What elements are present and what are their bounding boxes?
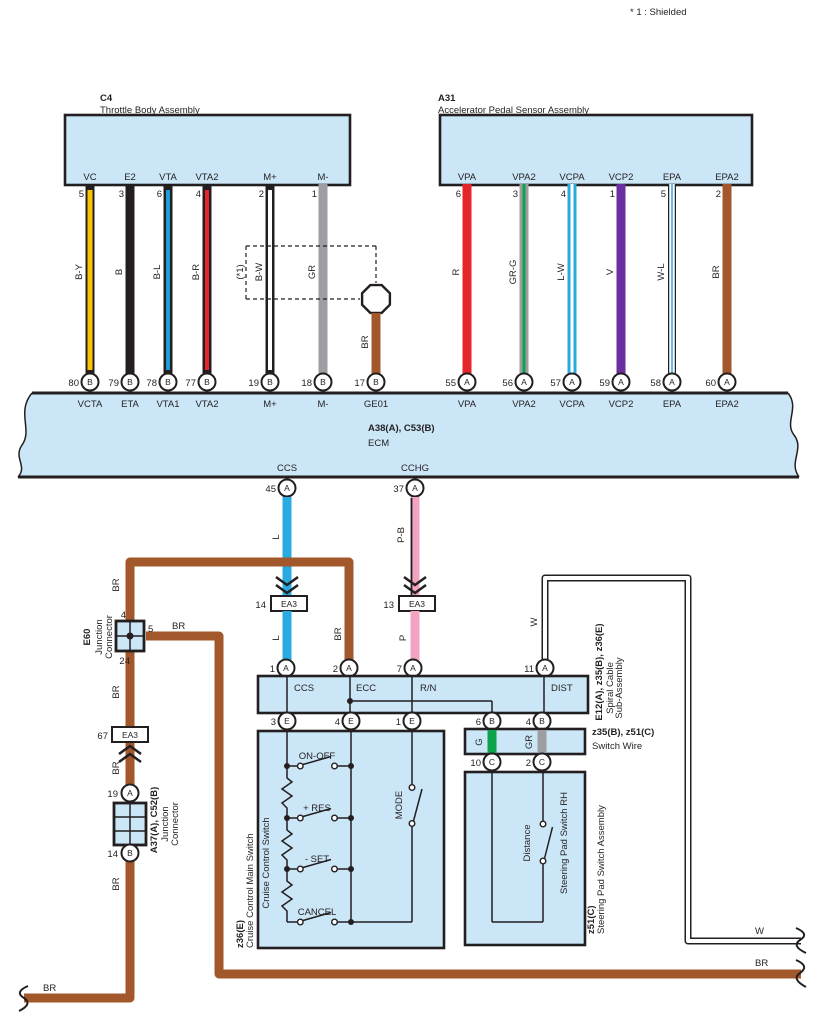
- wire-label: W: [529, 617, 540, 626]
- pin-letter: B: [127, 848, 133, 858]
- wire-label: BR: [111, 877, 122, 890]
- switch-label: Distance: [522, 825, 533, 862]
- pin-letter: B: [204, 377, 210, 387]
- pin-letter: A: [569, 377, 575, 387]
- a31-pin-number: 4: [561, 189, 566, 200]
- a31-pin-label: VPA2: [512, 172, 536, 183]
- ecm-pin-name: M-: [317, 399, 328, 410]
- pin-number: 77: [185, 378, 196, 389]
- pin-letter: B: [320, 377, 326, 387]
- ecm-pin-name: ETA: [121, 399, 139, 410]
- pin-number: 3: [271, 717, 276, 728]
- cruise-control-main-switch: ON-OFF + RES - SET CANCEL MODE Cruise Co…: [235, 730, 444, 948]
- pin-number: 37: [393, 484, 404, 495]
- pin-number: 11: [524, 664, 534, 675]
- switch-label: - SET: [305, 854, 329, 865]
- cruise-inner-label: Cruise Control Switch: [261, 817, 272, 908]
- c4-pin-label: VTA2: [195, 172, 218, 183]
- pin-letter: B: [489, 716, 495, 726]
- spiral-pin-label: R/N: [420, 683, 437, 694]
- pin-number: 45: [265, 484, 276, 495]
- pin-number: 1: [396, 717, 401, 728]
- pin-letter: C: [489, 757, 495, 767]
- pin-letter: B: [267, 377, 273, 387]
- ecm-pin-name: VCPA: [559, 399, 585, 410]
- wire-label: BR: [111, 761, 122, 774]
- junction-dot: [347, 698, 353, 704]
- c4-pin-label: VTA: [159, 172, 177, 183]
- pin-number: 19: [107, 789, 118, 800]
- pin-letter: A: [284, 483, 290, 493]
- c4-pin-label: E2: [124, 172, 136, 183]
- wire-label: B-Y: [74, 263, 85, 280]
- junction-dot: [127, 633, 134, 640]
- wire-label: GR-G: [508, 260, 519, 285]
- steering-name: Steering Pad Switch Assembly: [596, 805, 607, 934]
- pin-number: 60: [705, 378, 716, 389]
- shielded-note: * 1 : Shielded: [630, 7, 687, 18]
- pin-number: 2: [526, 758, 531, 769]
- c4-pin-number: 3: [119, 189, 124, 200]
- ecm-title: ECM: [368, 438, 389, 449]
- a31-pin-label: VCP2: [609, 172, 634, 183]
- switch-label: MODE: [394, 791, 405, 820]
- steering-pad-switch-assembly: Distance Steering Pad Switch RH z51(C) S…: [465, 771, 607, 945]
- pin-letter: A: [542, 663, 548, 673]
- wire-label: L-W: [556, 263, 567, 280]
- c4-pin-number: 4: [196, 189, 201, 200]
- ecm-pin-name: M+: [263, 399, 277, 410]
- pin-letter: C: [539, 757, 545, 767]
- steering-inner-label: Steering Pad Switch RH: [559, 792, 570, 894]
- e60-id: E60: [82, 629, 93, 646]
- c4-pin-number: 2: [259, 189, 264, 200]
- connector-number: 14: [255, 600, 266, 611]
- pin-letter: A: [346, 663, 352, 673]
- c4-pin-label: M-: [317, 172, 328, 183]
- spiral-id: E12(A), z35(B), z36(E): [594, 623, 605, 720]
- c4-pin-label: VC: [83, 172, 96, 183]
- ecm-pin-name: GE01: [364, 399, 388, 410]
- a31-pin-number: 2: [716, 189, 721, 200]
- wire-label: GR: [524, 735, 535, 749]
- pin-letter: B: [165, 377, 171, 387]
- ecm-pin-name: EPA: [663, 399, 682, 410]
- wire-label: BR: [711, 265, 722, 278]
- ecm-pin-name: CCS: [277, 463, 297, 474]
- ecm-pin-name: VCP2: [609, 399, 634, 410]
- spiral-pin-label: DIST: [551, 683, 573, 694]
- pin-number: 18: [301, 378, 312, 389]
- wire-label: BR: [755, 958, 768, 969]
- wire-label: W: [755, 926, 764, 937]
- a31-connector-body: [440, 115, 752, 185]
- pin-number: 6: [476, 717, 481, 728]
- e60-pin-number: 5: [148, 624, 153, 635]
- e60-pin-number: 24: [119, 656, 130, 667]
- wire-label: B-W: [254, 263, 265, 282]
- ecm-pin-name: EPA2: [715, 399, 739, 410]
- spiral-cable-block: A 1 A 2 A 7 A 11 CCS ECC R/N DIST E 3 E …: [258, 623, 625, 729]
- wire-label: B: [114, 269, 125, 275]
- pin-letter: A: [464, 377, 470, 387]
- ecm-pin-row: B 80 B 79 B 78 B 77 B 19 B 18 B 17 A 55 …: [68, 374, 735, 391]
- wire-label: GR: [307, 265, 318, 279]
- c4-pin-label: M+: [263, 172, 277, 183]
- a31-pin-number: 6: [456, 189, 461, 200]
- ecm-pin-name: VPA: [458, 399, 477, 410]
- ecm-pin-name: CCHG: [401, 463, 429, 474]
- a37-junction-connector: A 19 B 14 A37(A), C52(B) Junction Connec…: [107, 785, 181, 862]
- pin-letter: A: [724, 377, 730, 387]
- ecm-bottom-pins: A 45 A 37: [265, 480, 423, 497]
- c4-pin-number: 6: [157, 189, 162, 200]
- wire-label: R: [451, 268, 462, 275]
- pin-number: 57: [550, 378, 561, 389]
- wire-label: P-B: [396, 527, 407, 543]
- wire-label: W-L: [656, 263, 667, 280]
- pin-letter: A: [412, 483, 418, 493]
- ea3-67-connector: 67 EA3: [97, 727, 148, 762]
- pin-number: 4: [335, 717, 340, 728]
- a37-name: Connector: [170, 802, 181, 846]
- pin-number: 7: [397, 664, 402, 675]
- pin-number: 17: [354, 378, 365, 389]
- a31-pin-number: 1: [610, 189, 615, 200]
- ccs-wire: L 14 EA3 L: [255, 497, 307, 660]
- wiring-diagram-canvas: * 1 : Shielded C4 Throttle Body Assembly…: [0, 0, 818, 1022]
- a37-id: A37(A), C52(B): [149, 787, 160, 854]
- a31-pin-label: EPA: [663, 172, 682, 183]
- pin-letter: B: [539, 716, 545, 726]
- pin-number: 4: [526, 717, 531, 728]
- connector-label: EA3: [409, 599, 425, 609]
- a31-pin-number: 3: [513, 189, 518, 200]
- c4-wires: B-Y B B-L B-R B-W GR: [74, 184, 323, 374]
- cruise-name: Cruise Control Main Switch: [245, 833, 256, 948]
- ecm-id: A38(A), C53(B): [368, 423, 435, 434]
- a31-pin-number: 5: [661, 189, 666, 200]
- a31-pin-label: VPA: [458, 172, 477, 183]
- pin-letter: A: [410, 663, 416, 673]
- ecm-pin-name: VTA1: [156, 399, 179, 410]
- e60-junction-connector: 4 5 24 E60 Junction Connector: [82, 610, 153, 667]
- pin-letter: B: [373, 377, 379, 387]
- wire-label: L: [271, 635, 282, 640]
- ecm-block: A38(A), C53(B) ECM VCTA ETA VTA1 VTA2 M+…: [18, 393, 799, 477]
- spiral-name: Sub-Assembly: [614, 657, 625, 718]
- shield-ground-icon: [362, 285, 390, 313]
- wire-label: V: [605, 268, 616, 275]
- c4-pin-number: 5: [79, 189, 84, 200]
- wire-label: BR: [333, 627, 344, 640]
- switch-wire-id: z35(B), z51(C): [592, 727, 654, 738]
- c4-pin-number: 1: [312, 189, 317, 200]
- connector-label: EA3: [122, 730, 138, 740]
- pin-number: 10: [470, 758, 481, 769]
- pin-letter: A: [283, 663, 289, 673]
- c4-block: C4 Throttle Body Assembly VC E2 VTA VTA2…: [65, 93, 350, 200]
- shield-ref-label: (*1): [235, 264, 246, 279]
- spiral-pin-label: CCS: [294, 683, 314, 694]
- switch-label: ON-OFF: [299, 751, 336, 762]
- pin-letter: A: [669, 377, 675, 387]
- ecm-pin-name: VCTA: [78, 399, 103, 410]
- wire-label: BR: [172, 621, 185, 632]
- switch-label: CANCEL: [298, 907, 337, 918]
- connector-label: EA3: [281, 599, 297, 609]
- pin-letter: B: [87, 377, 93, 387]
- wire-label: BR: [43, 983, 56, 994]
- pin-letter: A: [521, 377, 527, 387]
- pin-number: 14: [107, 849, 118, 860]
- connector-number: 13: [383, 600, 394, 611]
- pin-letter: A: [618, 377, 624, 387]
- switch-wire-name: Switch Wire: [592, 741, 642, 752]
- pin-number: 59: [599, 378, 610, 389]
- pin-number: 1: [270, 664, 275, 675]
- a31-pin-label: VCPA: [559, 172, 585, 183]
- wire-label: G: [474, 738, 485, 745]
- wire-label: L: [271, 534, 282, 539]
- pin-letter: B: [127, 377, 133, 387]
- connector-number: 67: [97, 731, 108, 742]
- ecm-pin-name: VTA2: [195, 399, 218, 410]
- pin-letter: E: [284, 716, 290, 726]
- spiral-body: [258, 676, 588, 713]
- wire-label: BR: [360, 335, 371, 348]
- pin-letter: E: [409, 716, 415, 726]
- pin-letter: E: [348, 716, 354, 726]
- ecm-pin-name: VPA2: [512, 399, 536, 410]
- pin-number: 80: [68, 378, 79, 389]
- pin-number: 19: [248, 378, 259, 389]
- e60-pin-number: 4: [121, 610, 126, 621]
- pin-letter: A: [127, 788, 133, 798]
- pin-number: 58: [650, 378, 661, 389]
- wire-label: P: [398, 635, 409, 641]
- wire-label: BR: [111, 685, 122, 698]
- wire-label: B-R: [191, 264, 202, 281]
- a31-pin-label: EPA2: [715, 172, 739, 183]
- pin-number: 55: [445, 378, 456, 389]
- pin-number: 79: [108, 378, 119, 389]
- spiral-pin-label: ECC: [356, 683, 376, 694]
- switch-wire-block: G GR C 10 C 2 z35(B), z51(C) Switch Wire: [465, 727, 654, 771]
- cchg-wire: P-B 13 EA3 P: [383, 497, 435, 660]
- a31-wires: R GR-G L-W V W-L BR: [451, 184, 727, 374]
- c4-id: C4: [100, 93, 113, 104]
- a31-block: A31 Accelerator Pedal Sensor Assembly VP…: [438, 93, 752, 200]
- wire-label: B-L: [152, 265, 163, 280]
- e60-name: Connector: [104, 615, 115, 659]
- pin-number: 56: [502, 378, 513, 389]
- switch-label: + RES: [303, 803, 331, 814]
- a31-id: A31: [438, 93, 456, 104]
- pin-number: 78: [146, 378, 157, 389]
- wire-label: BR: [111, 578, 122, 591]
- pin-number: 2: [333, 664, 338, 675]
- wiring-diagram: * 1 : Shielded C4 Throttle Body Assembly…: [0, 0, 818, 1022]
